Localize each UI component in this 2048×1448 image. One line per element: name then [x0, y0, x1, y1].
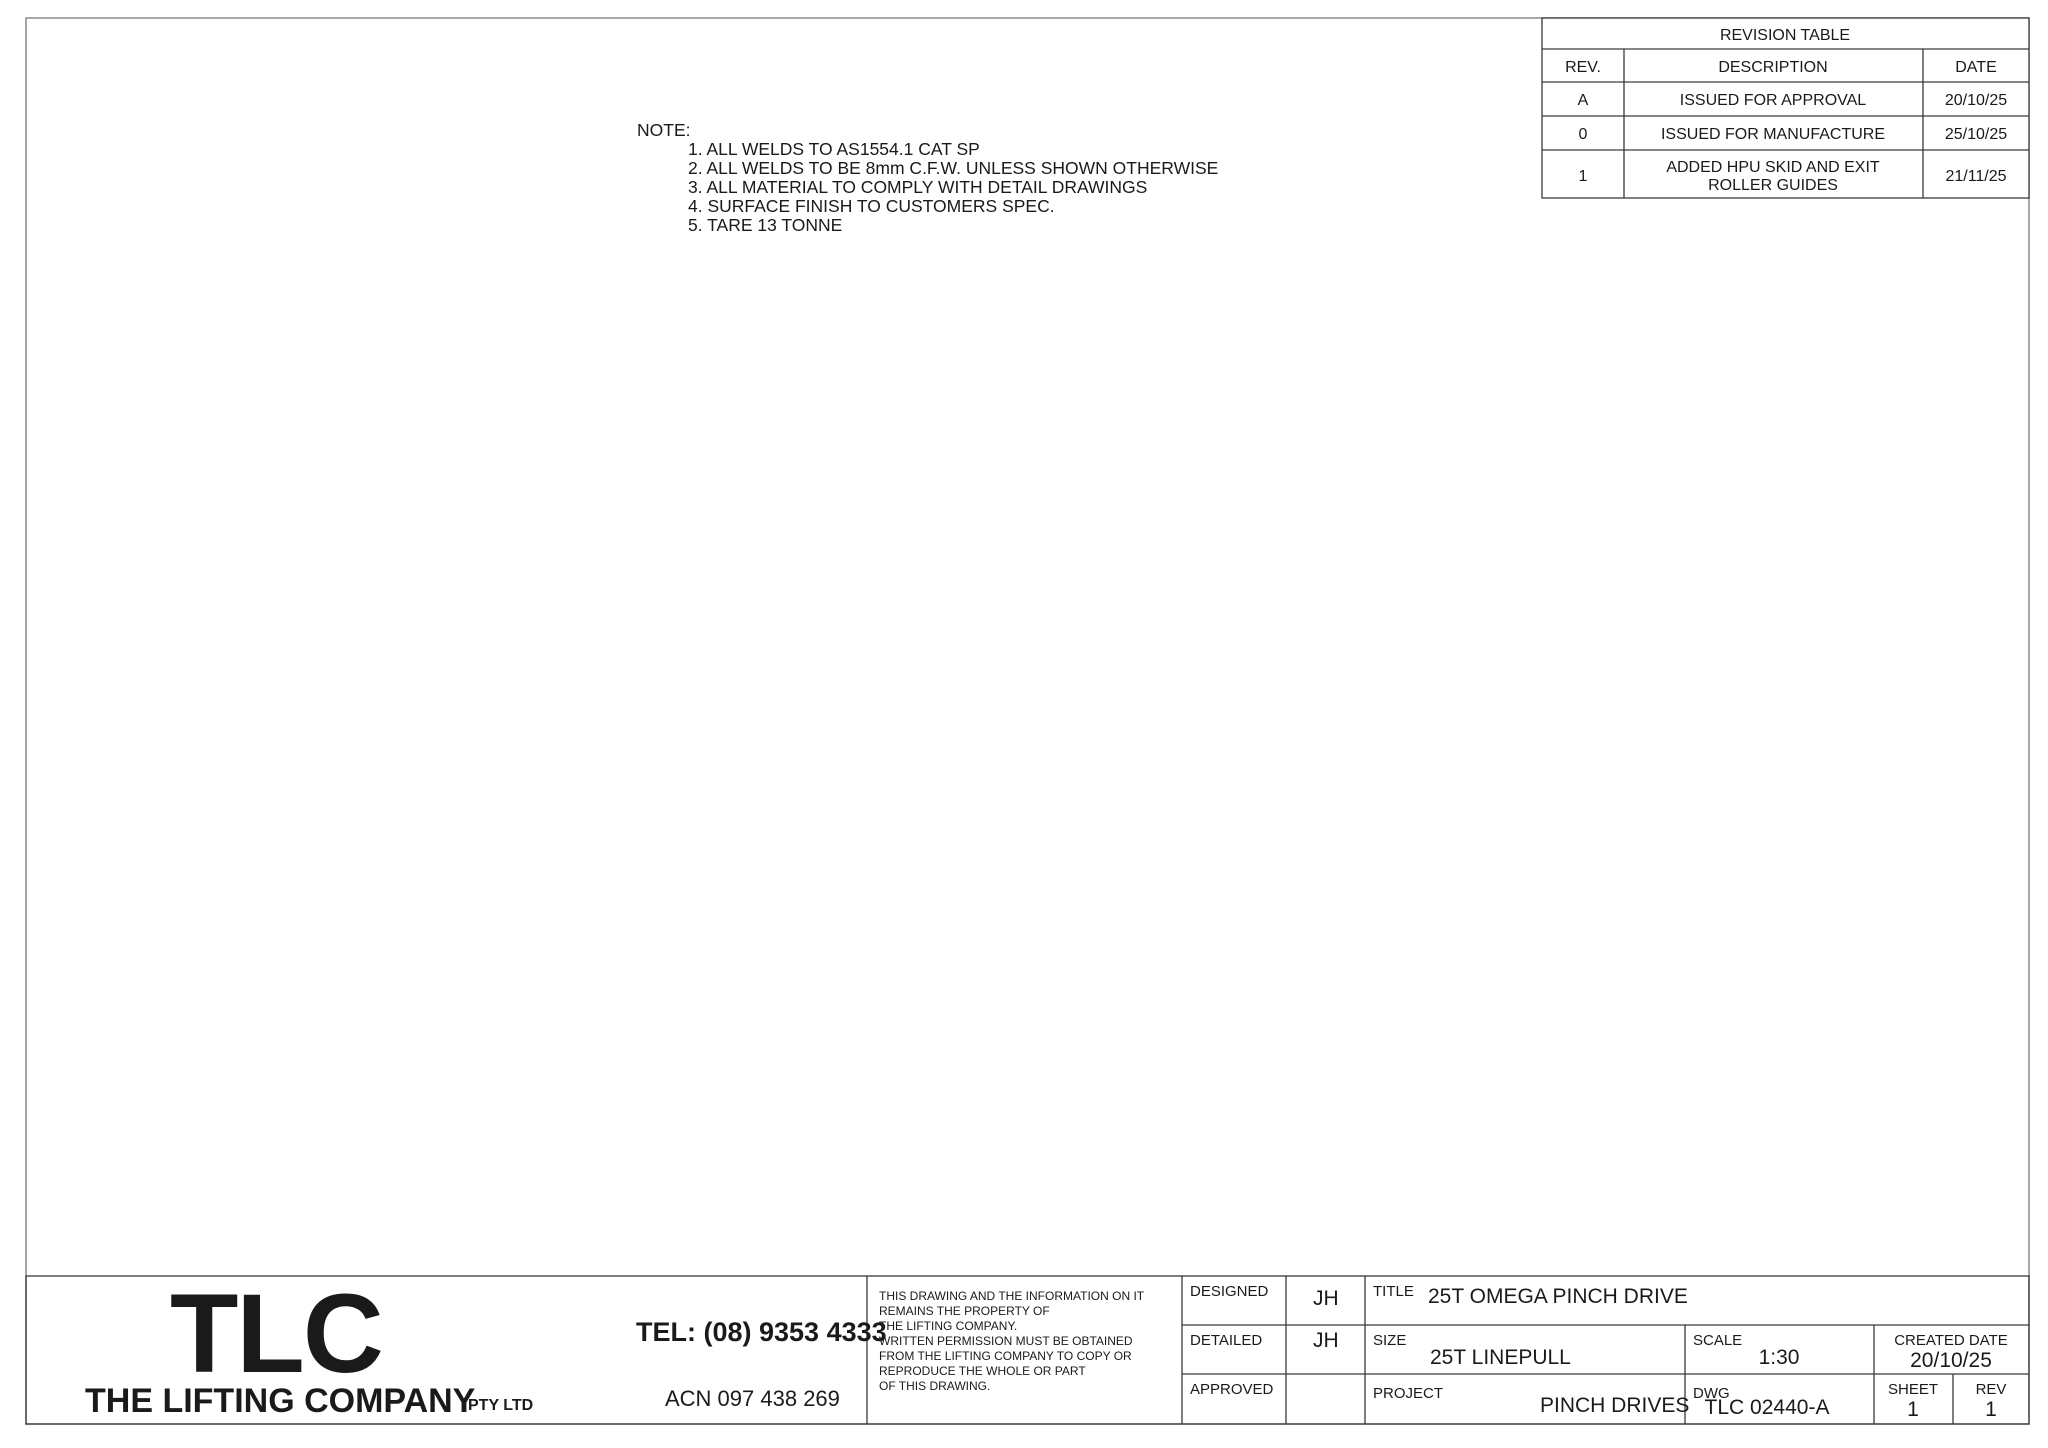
svg-text:5. TARE 13 TONNE: 5. TARE 13 TONNE: [688, 215, 842, 235]
svg-text:WRITTEN PERMISSION MUST BE OBT: WRITTEN PERMISSION MUST BE OBTAINED: [879, 1334, 1133, 1348]
svg-text:DESCRIPTION: DESCRIPTION: [1718, 59, 1827, 76]
svg-text:PTY LTD: PTY LTD: [468, 1397, 533, 1414]
svg-text:TEL: (08) 9353 4333: TEL: (08) 9353 4333: [636, 1317, 887, 1347]
svg-text:THIS DRAWING AND THE INFORMATI: THIS DRAWING AND THE INFORMATION ON IT: [879, 1289, 1145, 1303]
svg-text:2. ALL WELDS TO BE 8mm C.F.W.: 2. ALL WELDS TO BE 8mm C.F.W. UNLESS SHO…: [688, 158, 1218, 178]
svg-text:CREATED DATE: CREATED DATE: [1894, 1332, 2008, 1349]
svg-text:THE LIFTING COMPANY.: THE LIFTING COMPANY.: [879, 1319, 1017, 1333]
svg-text:3. ALL MATERIAL TO COMPLY WIT: 3. ALL MATERIAL TO COMPLY WITH DETAIL DR…: [688, 177, 1147, 197]
svg-text:20/10/25: 20/10/25: [1945, 92, 2007, 109]
svg-text:DETAILED: DETAILED: [1190, 1332, 1262, 1349]
svg-text:A: A: [1578, 92, 1589, 109]
svg-text:ROLLER GUIDES: ROLLER GUIDES: [1708, 177, 1838, 194]
svg-text:PINCH DRIVES: PINCH DRIVES: [1540, 1394, 1689, 1417]
svg-text:1: 1: [1579, 168, 1588, 185]
svg-text:PROJECT: PROJECT: [1373, 1385, 1443, 1402]
svg-text:REPRODUCE THE WHOLE OR PART: REPRODUCE THE WHOLE OR PART: [879, 1364, 1086, 1378]
svg-text:ADDED HPU SKID AND EXIT: ADDED HPU SKID AND EXIT: [1666, 159, 1880, 176]
svg-text:20/10/25: 20/10/25: [1910, 1349, 1992, 1372]
svg-text:SHEET: SHEET: [1888, 1381, 1938, 1398]
svg-text:JH: JH: [1313, 1287, 1339, 1310]
svg-text:21/11/25: 21/11/25: [1945, 168, 2006, 185]
svg-text:25T OMEGA PINCH DRIVE: 25T OMEGA PINCH DRIVE: [1428, 1285, 1688, 1308]
svg-text:OF THIS DRAWING.: OF THIS DRAWING.: [879, 1379, 990, 1393]
svg-text:TLC 02440-A: TLC 02440-A: [1705, 1396, 1830, 1419]
svg-text:SIZE: SIZE: [1373, 1332, 1406, 1349]
svg-text:DATE: DATE: [1955, 59, 1996, 76]
svg-text:1:30: 1:30: [1759, 1346, 1800, 1369]
svg-text:4. SURFACE FINISH TO CUSTOMER: 4. SURFACE FINISH TO CUSTOMERS SPEC.: [688, 196, 1055, 216]
svg-text:REVISION TABLE: REVISION TABLE: [1720, 27, 1850, 44]
svg-text:TITLE: TITLE: [1373, 1283, 1414, 1300]
svg-text:FROM THE LIFTING COMPANY TO CO: FROM THE LIFTING COMPANY TO COPY OR: [879, 1349, 1132, 1363]
svg-text:1: 1: [1907, 1398, 1919, 1421]
svg-text:1. ALL WELDS TO AS1554.1 CAT: 1. ALL WELDS TO AS1554.1 CAT SP: [688, 139, 980, 159]
svg-text:REV.: REV.: [1565, 59, 1601, 76]
svg-text:JH: JH: [1313, 1329, 1339, 1352]
svg-text:DESIGNED: DESIGNED: [1190, 1283, 1269, 1300]
svg-text:SCALE: SCALE: [1693, 1332, 1742, 1349]
svg-text:ISSUED FOR APPROVAL: ISSUED FOR APPROVAL: [1680, 92, 1867, 109]
svg-text:25/10/25: 25/10/25: [1945, 126, 2007, 143]
svg-text:REMAINS THE PROPERTY OF: REMAINS THE PROPERTY OF: [879, 1304, 1050, 1318]
svg-text:THE LIFTING COMPANY: THE LIFTING COMPANY: [85, 1382, 476, 1420]
svg-text:0: 0: [1579, 126, 1588, 143]
svg-text:1: 1: [1985, 1398, 1997, 1421]
svg-text:ISSUED FOR MANUFACTURE: ISSUED FOR MANUFACTURE: [1661, 126, 1885, 143]
svg-text:REV: REV: [1976, 1381, 2007, 1398]
svg-text:ACN 097 438 269: ACN 097 438 269: [665, 1386, 840, 1411]
svg-text:NOTE:: NOTE:: [637, 120, 690, 140]
svg-text:APPROVED: APPROVED: [1190, 1381, 1274, 1398]
svg-text:25T LINEPULL: 25T LINEPULL: [1430, 1346, 1571, 1369]
svg-text:TLC: TLC: [170, 1271, 382, 1396]
